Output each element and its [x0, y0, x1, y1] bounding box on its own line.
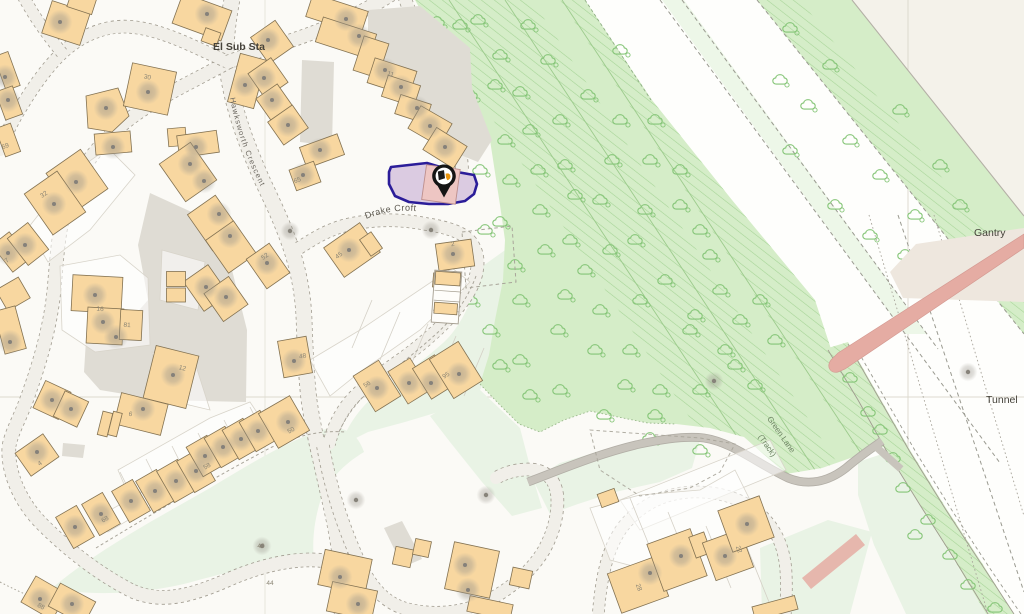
svg-text:16: 16 — [96, 306, 104, 313]
svg-text:El Sub Sta: El Sub Sta — [213, 41, 265, 53]
svg-text:81: 81 — [123, 322, 131, 329]
svg-text:40: 40 — [257, 543, 265, 550]
svg-text:Gantry: Gantry — [974, 227, 1006, 239]
svg-text:44: 44 — [266, 580, 274, 587]
svg-text:Tunnel: Tunnel — [986, 394, 1018, 406]
